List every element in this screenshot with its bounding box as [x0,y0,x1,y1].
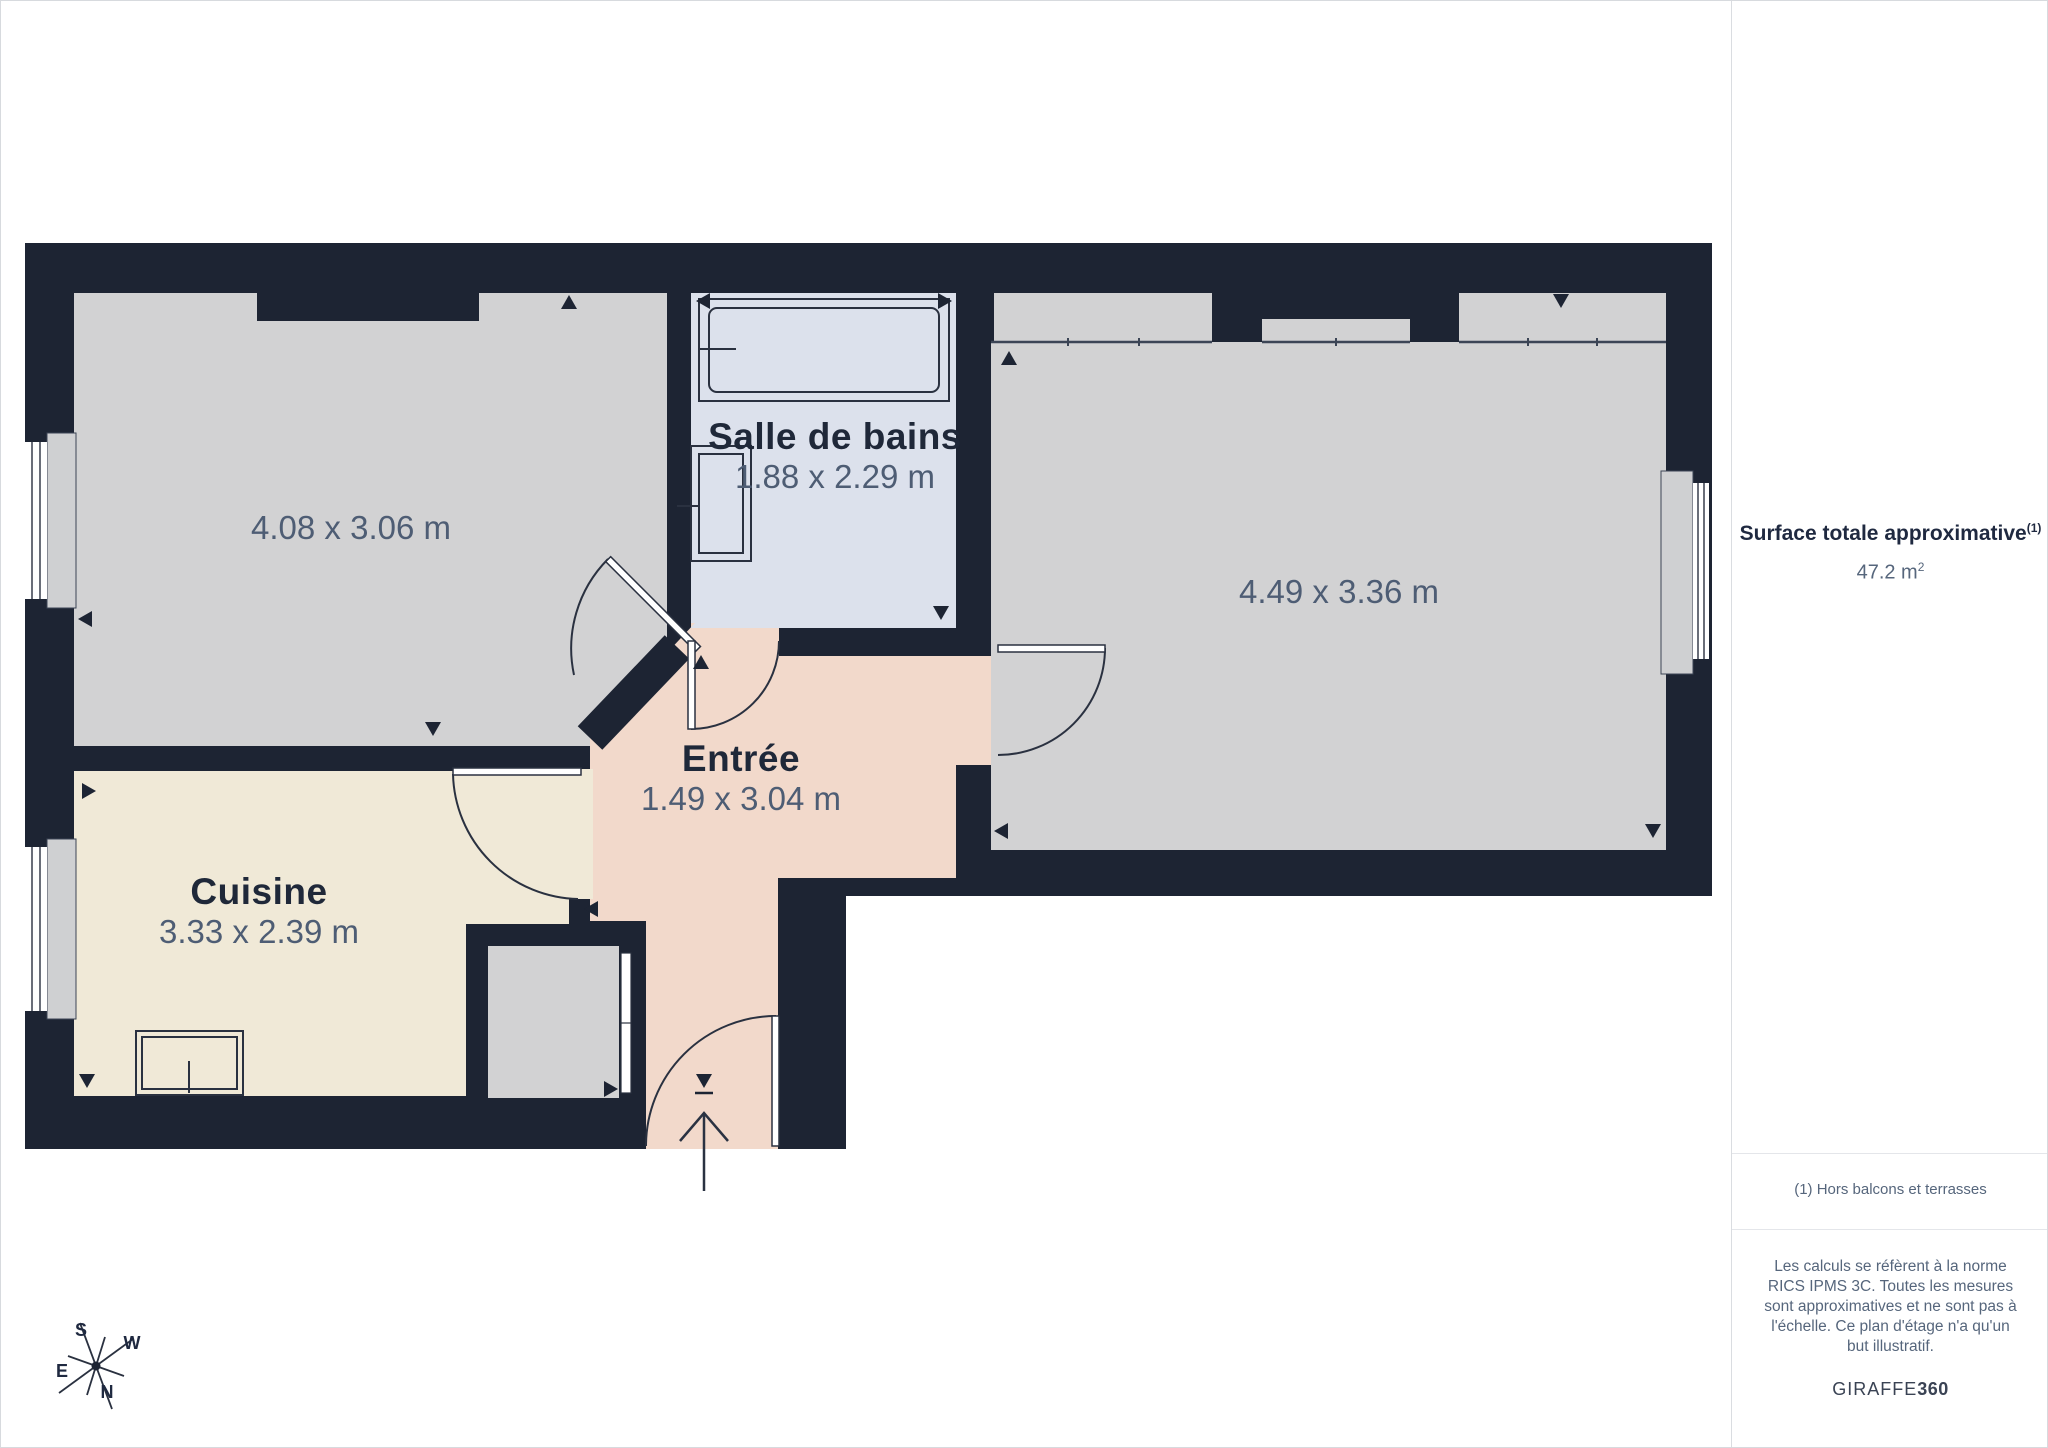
info-sidebar: Surface totale approximative(1) 47.2 m2 … [1731,1,2048,1448]
bedroom-floor [991,342,1666,850]
compass-south: S [75,1320,87,1340]
kitchen-window [25,839,76,1019]
window-sill [47,433,76,608]
total-area-value: 47.2 m2 [1732,560,2048,585]
floor-plan-page: S W E N 4.08 x 3.06 m Salle de bains 1.8… [0,0,2048,1448]
wall-notch [257,293,479,321]
total-area-block: Surface totale approximative(1) 47.2 m2 [1732,521,2048,585]
window-glass [25,847,47,1011]
compass-east: E [56,1361,68,1381]
brand-name: GIRAFFE [1832,1379,1917,1399]
window-sill [1661,471,1693,674]
bathroom-floor [691,293,956,628]
floors [74,293,1666,1149]
window-glass [25,442,47,599]
total-area-number: 47.2 m [1857,562,1918,584]
compass-west: W [124,1333,141,1353]
door-leaf [998,645,1105,652]
window-sill [47,839,76,1019]
total-area-superscript: (1) [2027,521,2042,535]
total-area-title: Surface totale approximative(1) [1732,521,2048,546]
divider [1732,1229,2048,1230]
door-leaf [772,1016,779,1146]
bedroom-window [1661,471,1709,674]
giraffe360-logo: GIRAFFE360 [1732,1379,2048,1400]
brand-suffix: 360 [1917,1379,1949,1399]
compass-north: N [101,1382,114,1402]
window-glass [1693,483,1709,659]
door-leaf [453,768,581,775]
door-leaf [688,641,695,729]
divider [1732,1153,2048,1154]
kitchen-door-gap [569,769,593,899]
living-room-floor [74,293,667,746]
compass: S W E N [56,1320,141,1409]
bedroom-door-gap [956,656,991,765]
living-room-window [25,433,76,608]
total-area-label: Surface totale approximative [1740,522,2027,545]
compass-center-dot [92,1362,101,1371]
area-footnote: (1) Hors balcons et terrasses [1732,1181,2048,1198]
disclaimer-text: Les calculs se réfèrent à la norme RICS … [1760,1257,2022,1357]
total-area-exponent: 2 [1918,560,1925,574]
niche-left [994,293,1212,342]
closet [466,924,646,1149]
closet-floor [488,946,619,1098]
